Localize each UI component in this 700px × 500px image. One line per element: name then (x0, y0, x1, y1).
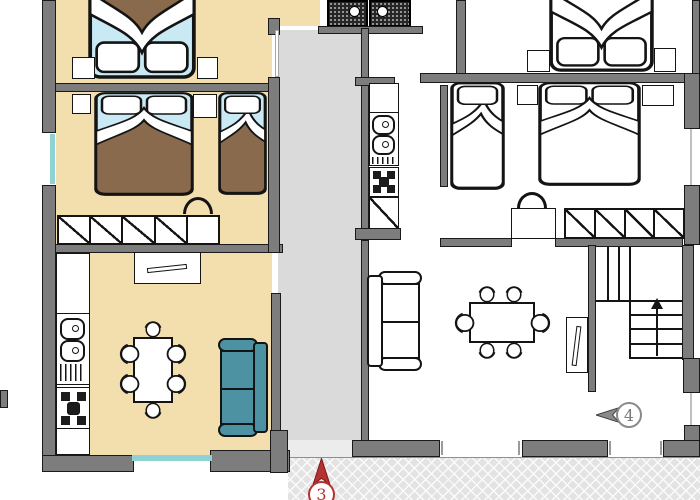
oven-icon (379, 177, 389, 187)
shower-drain-icon (377, 6, 388, 17)
wall (352, 440, 440, 457)
chair (141, 318, 165, 338)
tv-icon (147, 264, 187, 273)
oven-icon (67, 402, 80, 415)
wall (456, 0, 466, 75)
window-jamb (518, 441, 520, 455)
door-swing-icon (517, 192, 547, 208)
nightstand (72, 94, 91, 114)
chair (166, 372, 190, 396)
nightstand (193, 94, 217, 118)
chair (476, 283, 498, 303)
chair (141, 402, 165, 422)
sink-basin (372, 115, 395, 135)
sofa-backrest (253, 342, 268, 433)
corridor-floor (278, 30, 362, 440)
wardrobe-section (624, 208, 656, 239)
shower-tray (369, 0, 411, 27)
wall (684, 185, 700, 245)
corridor-terrace-opening (288, 440, 352, 457)
shower-tray (327, 0, 368, 27)
sofa (367, 271, 422, 371)
double-bed (94, 92, 194, 196)
wardrobe-section (186, 215, 220, 245)
wall (271, 293, 281, 440)
wall (683, 358, 700, 393)
stove (369, 167, 399, 197)
dining-table (469, 302, 535, 343)
double-bed (549, 0, 654, 72)
chair (503, 342, 525, 362)
unit-4-label: 4 (624, 406, 634, 425)
nightstand (654, 48, 676, 72)
nightstand (72, 57, 95, 79)
wardrobe-section (121, 215, 155, 245)
wardrobe-section (57, 215, 91, 245)
sideboard-detail (572, 326, 582, 366)
wall (692, 0, 700, 75)
burner-icon (387, 185, 395, 193)
wall (355, 228, 401, 240)
sofa-armrest (218, 423, 258, 437)
wall (0, 390, 8, 408)
burner-icon (61, 392, 70, 401)
chair (503, 283, 525, 303)
chair (530, 311, 554, 335)
window-jamb (660, 441, 662, 455)
sofa-seat (381, 283, 420, 359)
wall (361, 28, 369, 240)
wall (663, 440, 700, 457)
shower-drain-icon (349, 6, 360, 17)
floor-plan: 3 4 (0, 0, 700, 500)
nightstand (527, 50, 550, 72)
dresser (511, 208, 556, 239)
sink-basin (60, 340, 85, 362)
window-jamb (441, 441, 443, 455)
sink-basin (372, 135, 395, 155)
window-line (690, 393, 692, 425)
double-bed (538, 82, 641, 186)
nightstand (517, 85, 538, 105)
tv-cabinet (134, 252, 201, 284)
nightstand (642, 85, 674, 106)
wall (522, 440, 608, 457)
wall (684, 73, 700, 129)
terrace (288, 457, 700, 500)
chair (476, 342, 498, 362)
sideboard (566, 317, 588, 373)
stair-up-arrow-icon (651, 298, 663, 309)
kitchen-sink (369, 112, 399, 166)
sink-drainer (372, 157, 395, 164)
wardrobe-section (154, 215, 188, 245)
chair (116, 342, 140, 366)
wardrobe (57, 215, 220, 245)
wardrobe-section (594, 208, 626, 239)
single-bed (450, 82, 505, 190)
wall (318, 26, 423, 34)
sofa-seat (220, 350, 255, 425)
wall (55, 83, 278, 92)
window-line (690, 129, 692, 185)
wall (268, 77, 280, 253)
window (50, 134, 55, 184)
burner-icon (77, 416, 86, 425)
double-bed (88, 0, 196, 79)
sink-drainer (60, 364, 85, 381)
window-jamb (609, 441, 611, 455)
wall (42, 0, 56, 133)
wall (682, 245, 694, 360)
chair (166, 342, 190, 366)
wall (270, 430, 288, 473)
wall (588, 245, 596, 392)
wardrobe-section (89, 215, 123, 245)
stair-arrow-shaft (656, 306, 658, 356)
sink-basin (60, 318, 85, 340)
unit-4-badge: 4 (616, 402, 642, 428)
sofa (218, 338, 268, 437)
door-opening (275, 30, 279, 77)
door-swing-icon (183, 197, 213, 214)
unit-3-label: 3 (316, 485, 326, 500)
kitchen-cabinet (369, 83, 399, 113)
wall (42, 455, 134, 472)
burner-icon (61, 416, 70, 425)
wall (42, 185, 56, 457)
wall (440, 238, 512, 247)
sofa-armrest (378, 357, 422, 371)
single-bed (218, 92, 267, 195)
wall (555, 238, 683, 247)
wall (440, 85, 448, 187)
kitchen-cabinet (369, 197, 399, 229)
wardrobe-section (653, 208, 685, 239)
stove (56, 387, 90, 429)
chair (116, 372, 140, 396)
burner-icon (77, 392, 86, 401)
kitchen-sink (56, 313, 90, 385)
wardrobe-section (564, 208, 596, 239)
chair (451, 311, 475, 335)
nightstand (197, 57, 218, 79)
window (132, 455, 212, 461)
wardrobe (564, 208, 685, 239)
